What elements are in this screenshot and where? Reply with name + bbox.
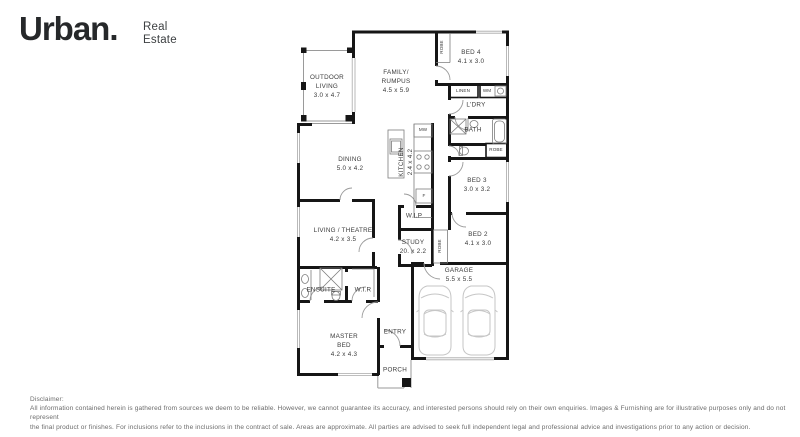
linen-label: LINEN: [456, 88, 470, 94]
room-label-study: STUDY 20. x 2.2: [400, 239, 426, 257]
garage-cars: [417, 286, 498, 355]
room-label-bed2: BED 2 4.1 x 3.0: [465, 231, 491, 249]
washing-machine: [495, 86, 506, 96]
robe-label-bed2: ROBE: [437, 239, 443, 252]
wm-label: WM: [483, 88, 491, 94]
room-label-ensuite: ENSUITE: [306, 287, 335, 296]
disclaimer-title: Disclaimer:: [30, 395, 800, 404]
room-label-family-rumpus: FAMILY/ RUMPUS 4.5 x 5.9: [382, 69, 411, 95]
disclaimer-line2: the final product or finishes. For inclu…: [30, 423, 800, 432]
room-label-porch: PORCH: [383, 367, 407, 376]
car-icon: [417, 286, 454, 355]
fridge-label: F: [423, 193, 426, 199]
disclaimer: Disclaimer: All information contained he…: [30, 395, 800, 432]
car-icon: [461, 286, 498, 355]
room-label-living-theatre: LIVING / THEATRE 4.2 x 3.5: [314, 227, 373, 245]
room-label-entry: ENTRY: [384, 329, 406, 338]
room-label-kitchen: KITCHEN 2.4 x 4.2: [398, 147, 416, 176]
room-label-dining: DINING 5.0 x 4.2: [337, 156, 363, 174]
kitchen-bench: [414, 124, 432, 218]
door-arcs: [310, 66, 468, 346]
wc-toilet: [460, 147, 469, 155]
robe-label-bed4: ROBE: [439, 40, 445, 53]
flyer-page: Urban. Real Estate: [0, 0, 800, 437]
room-label-wip: W.I.P: [406, 213, 422, 222]
room-label-bed3: BED 3 3.0 x 3.2: [464, 177, 490, 195]
room-label-outdoor-living: OUTDOOR LIVING 3.0 x 4.7: [310, 74, 344, 100]
ensuite-basin: [302, 275, 309, 284]
room-label-garage: GARAGE 5.5 x 5.5: [445, 267, 473, 285]
cooktop: [414, 151, 432, 173]
room-label-bed4: BED 4 4.1 x 3.0: [458, 49, 484, 67]
robe-label-bath: ROBE: [489, 147, 502, 153]
room-label-master-bed: MASTER BED 4.2 x 4.3: [330, 333, 358, 359]
disclaimer-line1: All information contained herein is gath…: [30, 404, 800, 422]
room-label-laundry: L'DRY: [466, 102, 485, 111]
room-label-bath: BATH: [464, 127, 481, 136]
porch-post: [402, 378, 411, 387]
room-label-wir: W.I.R: [355, 287, 372, 296]
microwave-label: MW: [419, 127, 427, 133]
